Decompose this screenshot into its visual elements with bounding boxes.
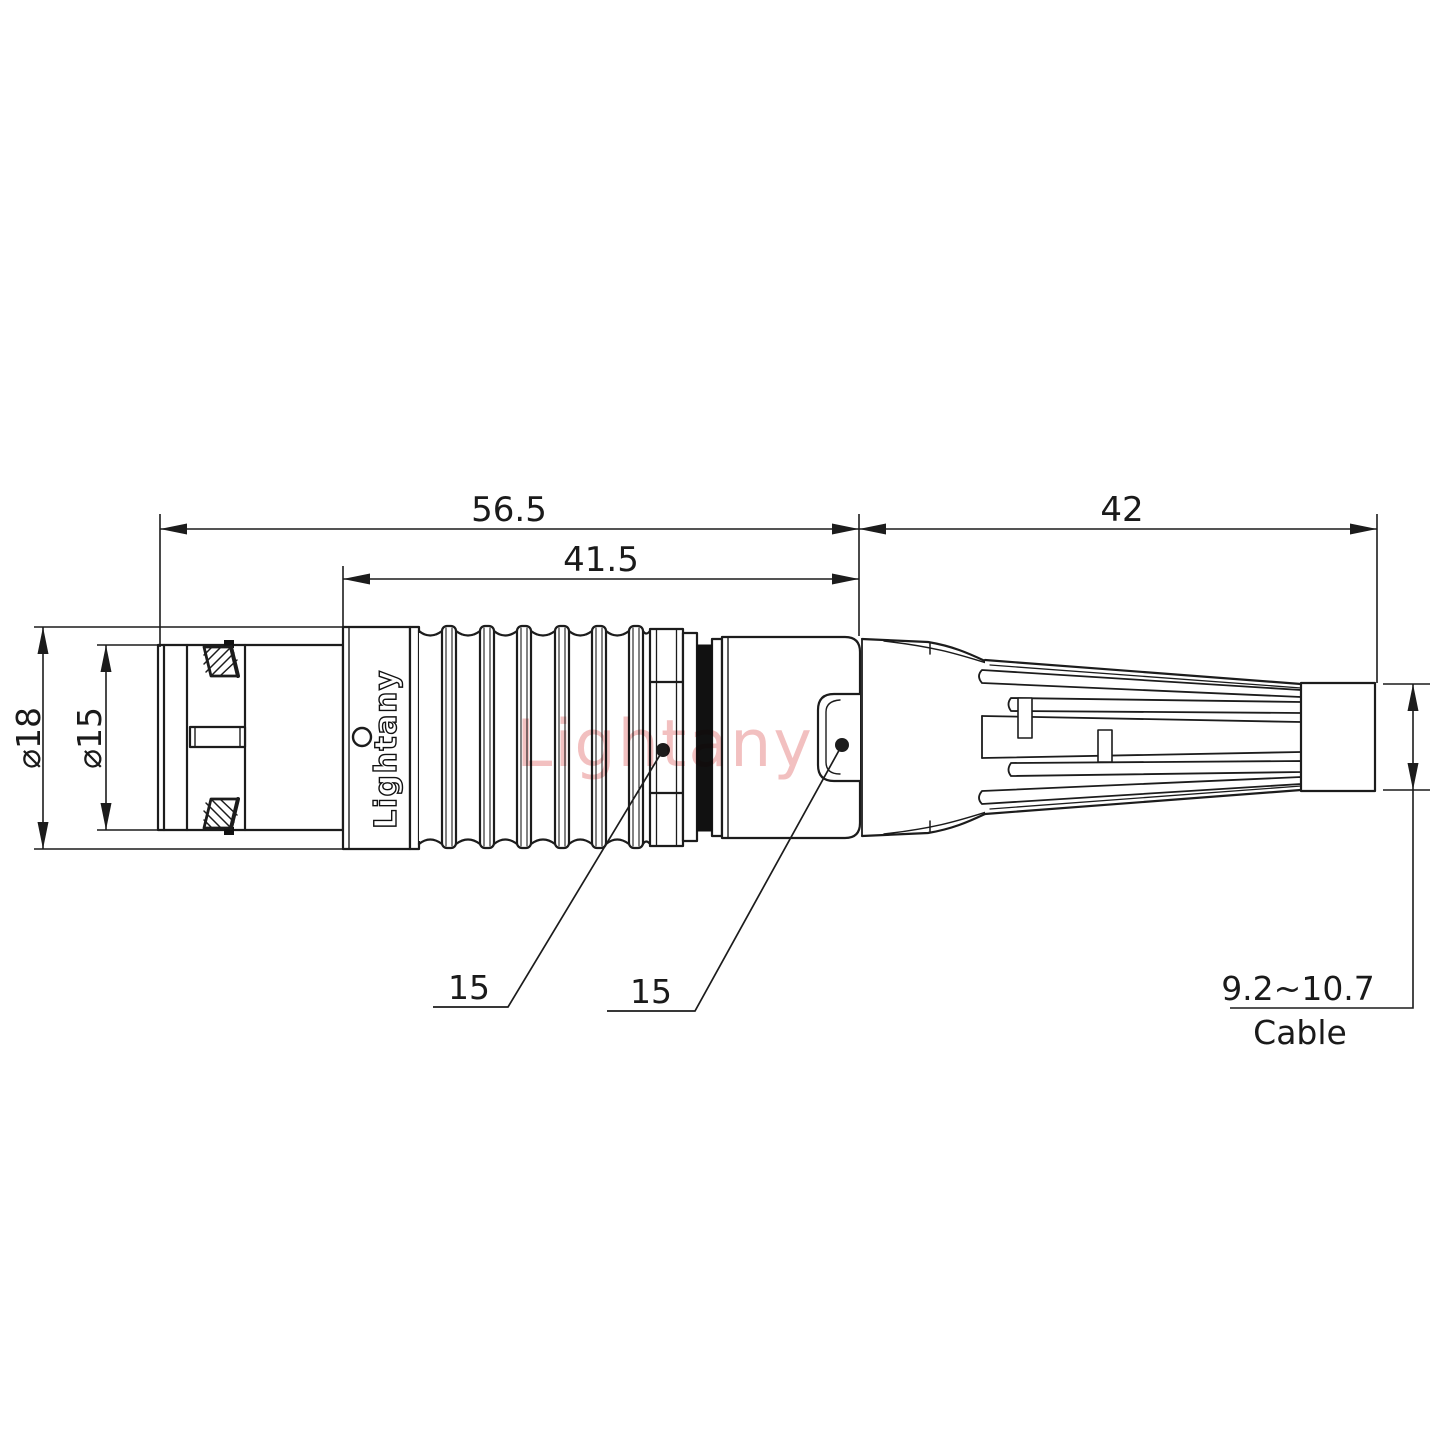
callout-1-label: 15 [448, 968, 490, 1007]
nut-recess [818, 694, 860, 781]
plug-nose [158, 640, 343, 835]
callout-2-label: 15 [630, 972, 672, 1011]
strain-relief-cone [862, 639, 1000, 836]
dia-nose-label: ⌀15 [70, 707, 109, 769]
connector-technical-drawing: 56.5 41.5 42 ⌀18 ⌀15 Lightany 15 15 9.2~… [0, 0, 1440, 1440]
cable-tip [1301, 683, 1375, 791]
body-engraving-text: Lightany [369, 669, 404, 829]
callout-2-dot [835, 738, 849, 752]
dim-overall-label: 56.5 [471, 490, 547, 530]
dim-rear-label: 42 [1100, 490, 1143, 530]
cable-range-label: 9.2~10.7 [1221, 969, 1375, 1008]
dim-body-label: 41.5 [563, 540, 639, 580]
watermark-text: Lightany [516, 707, 814, 782]
drawing-canvas: 56.5 41.5 42 ⌀18 ⌀15 Lightany 15 15 9.2~… [0, 0, 1440, 1440]
strain-relief-fins [979, 660, 1301, 814]
cable-label: Cable [1253, 1013, 1347, 1052]
dia-outer-label: ⌀18 [9, 707, 48, 769]
